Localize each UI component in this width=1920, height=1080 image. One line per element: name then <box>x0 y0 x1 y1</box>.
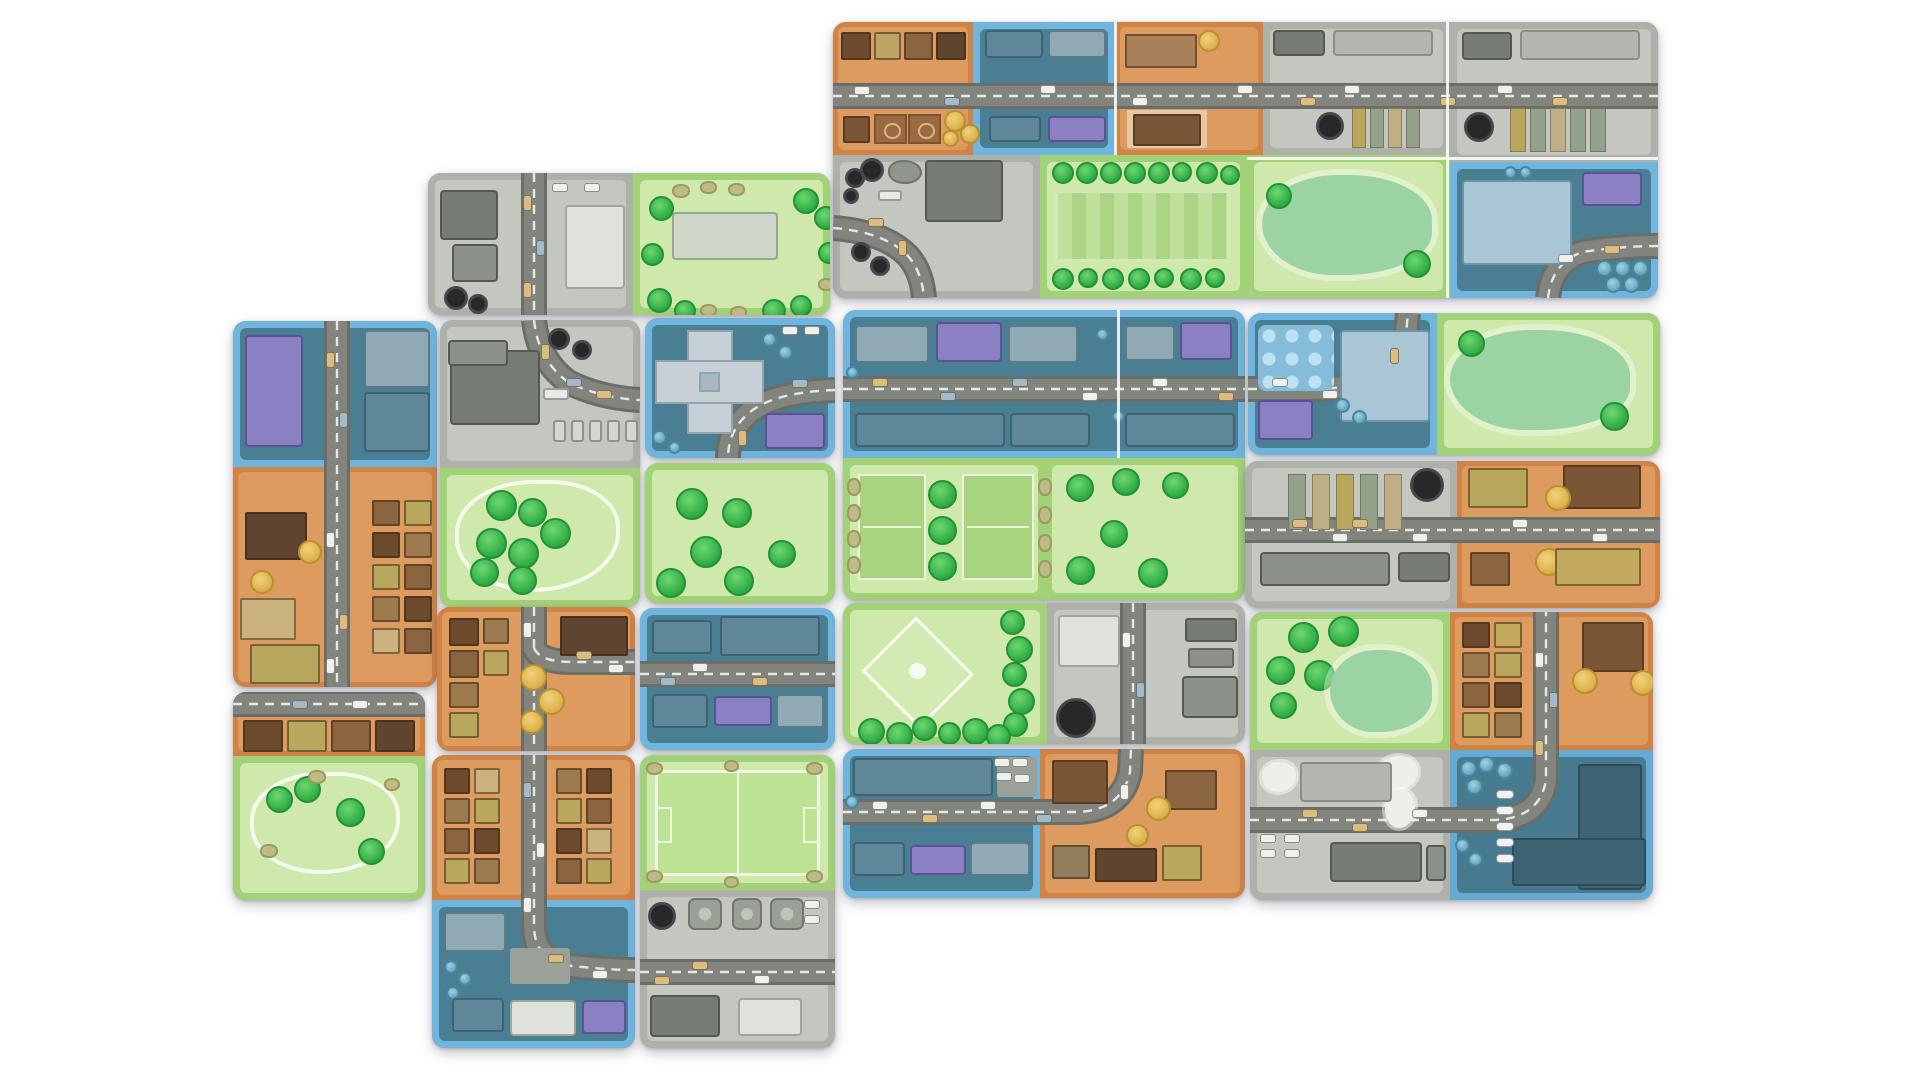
truck <box>553 420 566 442</box>
tree <box>486 490 517 521</box>
shrub <box>700 304 717 315</box>
building <box>1058 615 1120 667</box>
tree <box>1270 692 1297 719</box>
tree <box>986 724 1011 744</box>
house <box>243 720 283 752</box>
big-house <box>240 598 296 640</box>
tree <box>540 518 571 549</box>
car <box>1040 85 1056 94</box>
car <box>754 975 770 984</box>
house <box>331 720 371 752</box>
tree <box>912 716 937 741</box>
house <box>449 618 479 646</box>
shrub <box>728 183 745 196</box>
tree <box>1162 472 1189 499</box>
car <box>566 378 582 387</box>
tree <box>1002 662 1027 687</box>
tile-pool-meadow[interactable] <box>1248 313 1660 455</box>
blue-tree <box>1632 260 1649 277</box>
car <box>1120 784 1129 800</box>
car <box>548 954 564 963</box>
big-house <box>1052 760 1108 804</box>
house <box>372 596 400 622</box>
building <box>1010 413 1090 447</box>
house <box>404 532 432 558</box>
tile-grid-shops[interactable] <box>432 755 635 1048</box>
tree <box>508 538 539 569</box>
truck <box>589 420 602 442</box>
building <box>1520 30 1640 60</box>
car <box>1412 533 1428 542</box>
shrub <box>1038 560 1052 578</box>
shrub <box>646 762 663 775</box>
net-line <box>967 526 1030 528</box>
car <box>1272 378 1288 387</box>
truck <box>625 420 638 442</box>
container-row <box>1570 108 1586 152</box>
building <box>1008 325 1078 363</box>
tree <box>1288 622 1319 653</box>
container-row <box>1370 108 1384 148</box>
building <box>925 160 1003 222</box>
tile-seam <box>1247 157 1658 160</box>
house <box>444 858 470 884</box>
house <box>1494 652 1522 678</box>
car <box>592 970 608 979</box>
blue-tree <box>1478 756 1495 773</box>
building <box>714 696 772 726</box>
building <box>364 330 430 388</box>
house <box>904 32 933 60</box>
tree <box>336 798 365 827</box>
pond <box>1330 650 1432 732</box>
house <box>586 828 612 854</box>
blue-tree <box>1468 852 1483 867</box>
machine <box>770 898 804 930</box>
boat <box>1496 822 1514 831</box>
truck <box>571 420 584 442</box>
car <box>536 842 545 858</box>
tree <box>928 516 957 545</box>
container-row <box>1352 108 1366 148</box>
car <box>1136 682 1145 698</box>
building <box>652 694 708 728</box>
building <box>364 392 430 452</box>
tree <box>470 558 499 587</box>
house <box>843 116 870 143</box>
yellow-tree <box>520 710 544 734</box>
shrub <box>847 556 861 574</box>
shrub <box>806 762 823 775</box>
car <box>576 651 592 660</box>
tree <box>508 566 537 595</box>
house <box>556 828 582 854</box>
container-row <box>1406 108 1420 148</box>
shrub <box>806 870 823 883</box>
car <box>1592 533 1608 542</box>
house <box>449 682 479 708</box>
tree <box>358 838 385 865</box>
car <box>523 195 532 211</box>
yellow-tree <box>298 540 322 564</box>
building <box>1048 116 1106 142</box>
car <box>339 614 348 630</box>
crop-field <box>1055 190 1230 262</box>
tile-southside[interactable] <box>843 749 1245 898</box>
big-house <box>1095 848 1157 882</box>
tree <box>928 480 957 509</box>
car <box>1284 849 1300 858</box>
car <box>523 782 532 798</box>
building <box>1582 172 1642 206</box>
house <box>1494 712 1522 738</box>
tile-plaza[interactable] <box>645 318 835 458</box>
container-row <box>1388 108 1402 148</box>
container-row <box>1312 474 1330 530</box>
plaza-building <box>655 330 760 430</box>
baseball-diamond <box>855 613 977 727</box>
car <box>922 814 938 823</box>
car <box>854 86 870 95</box>
building <box>738 998 802 1036</box>
big-house <box>1468 468 1528 508</box>
car <box>552 183 568 192</box>
building <box>1426 845 1446 881</box>
court-ring <box>884 123 901 139</box>
shrub <box>646 870 663 883</box>
building <box>855 413 1005 447</box>
machine <box>688 898 722 930</box>
car <box>1014 774 1030 783</box>
building <box>853 758 993 796</box>
car <box>1260 834 1276 843</box>
plaza-center <box>699 372 720 392</box>
building <box>582 1000 626 1034</box>
car <box>1497 85 1513 94</box>
building <box>1462 180 1572 265</box>
tile-center-commercial[interactable] <box>843 310 1245 600</box>
tree <box>641 243 664 266</box>
car <box>1604 245 1620 254</box>
building <box>720 616 820 656</box>
house <box>372 628 400 654</box>
tree <box>1154 268 1174 288</box>
house <box>404 596 432 622</box>
car <box>1549 692 1558 708</box>
tree <box>768 540 796 568</box>
car <box>872 801 888 810</box>
truck <box>878 190 902 201</box>
yellow-tree <box>1198 30 1220 52</box>
car <box>868 218 884 227</box>
big-house <box>1165 770 1217 810</box>
tree <box>1006 636 1033 663</box>
house <box>1462 682 1490 708</box>
big-house <box>1125 34 1197 68</box>
shrub <box>818 278 830 291</box>
house <box>287 720 327 752</box>
car <box>898 240 907 256</box>
building <box>1260 552 1390 586</box>
building <box>1273 30 1325 56</box>
car <box>804 900 820 909</box>
house <box>586 768 612 794</box>
house <box>444 828 470 854</box>
tree <box>722 498 752 528</box>
blue-tree <box>652 430 667 445</box>
house <box>1462 712 1490 738</box>
car <box>944 97 960 106</box>
car <box>782 326 798 335</box>
machine <box>732 898 762 930</box>
building <box>452 244 498 282</box>
shrub <box>1038 534 1052 552</box>
car <box>1300 97 1316 106</box>
building <box>1125 325 1175 361</box>
yellow-tree <box>960 124 980 144</box>
tile-plaza-park[interactable] <box>645 463 835 603</box>
tile-upper-mid[interactable] <box>428 173 830 315</box>
house <box>474 798 500 824</box>
house <box>444 768 470 794</box>
blue-tree <box>1504 166 1517 179</box>
tree <box>1112 468 1140 496</box>
shrub <box>384 778 400 791</box>
car <box>523 897 532 913</box>
tile-orchard-road[interactable] <box>437 607 635 751</box>
truck <box>543 388 569 400</box>
car <box>804 915 820 924</box>
boat <box>1496 806 1514 815</box>
tree <box>793 188 819 214</box>
car <box>980 801 996 810</box>
tile-depot-estate[interactable] <box>1245 461 1660 608</box>
car <box>1012 378 1028 387</box>
tile-west-park[interactable] <box>233 692 425 900</box>
building <box>510 1000 576 1036</box>
tree <box>656 568 686 598</box>
tree <box>962 718 989 744</box>
car <box>1535 652 1544 668</box>
building <box>1125 413 1235 447</box>
building <box>1333 30 1433 56</box>
car <box>536 240 545 256</box>
building <box>1180 322 1232 360</box>
house <box>404 564 432 590</box>
rock-pile <box>888 160 922 184</box>
tree <box>938 722 961 744</box>
shrub <box>847 530 861 548</box>
building <box>650 995 720 1037</box>
car <box>1152 378 1168 387</box>
tree <box>649 196 674 221</box>
house <box>444 798 470 824</box>
big-house <box>250 644 320 684</box>
building <box>1340 330 1430 422</box>
tree <box>1328 616 1359 647</box>
blue-tree <box>846 366 859 379</box>
container-row <box>1510 108 1526 152</box>
pier-arm <box>1512 838 1646 886</box>
tree <box>647 288 672 313</box>
storage-tank <box>1410 468 1444 502</box>
truck <box>1185 618 1237 642</box>
container-row <box>1590 108 1606 152</box>
big-house <box>1582 622 1644 672</box>
house <box>586 858 612 884</box>
car <box>596 390 612 399</box>
car <box>940 392 956 401</box>
tree <box>1000 610 1025 635</box>
tree <box>1205 268 1225 288</box>
basketball-court <box>874 114 907 144</box>
building <box>452 998 504 1032</box>
car <box>1218 392 1234 401</box>
car <box>608 664 624 673</box>
tree <box>266 786 293 813</box>
car <box>1344 85 1360 94</box>
blue-tree <box>1455 838 1470 853</box>
house <box>1494 682 1522 708</box>
tree <box>1180 268 1202 290</box>
car <box>1552 97 1568 106</box>
tennis-court <box>858 474 926 580</box>
pebble-pool <box>1258 325 1334 391</box>
shrub <box>724 760 739 772</box>
car <box>1512 519 1528 528</box>
building <box>910 845 966 875</box>
car <box>352 700 368 709</box>
house <box>1462 622 1490 648</box>
tree <box>1066 474 1094 502</box>
boat <box>1496 790 1514 799</box>
building <box>1258 400 1313 440</box>
tree <box>1078 268 1098 288</box>
yellow-tree <box>538 688 565 715</box>
shrub <box>847 504 861 522</box>
yellow-tree <box>1126 824 1149 847</box>
pitcher-mound <box>909 663 926 679</box>
tree <box>1196 162 1218 184</box>
storage-tank <box>860 158 884 182</box>
tile-ballpark-works[interactable] <box>843 603 1245 744</box>
car <box>326 352 335 368</box>
tree <box>690 536 722 568</box>
goal <box>656 807 672 843</box>
blue-tree <box>1519 166 1532 179</box>
house <box>474 768 500 794</box>
building <box>1182 676 1238 718</box>
truck <box>1188 648 1234 668</box>
car <box>692 663 708 672</box>
storage-tank <box>870 256 890 276</box>
house <box>483 650 509 676</box>
tree <box>476 528 507 559</box>
car <box>541 344 550 360</box>
tree <box>1066 556 1095 585</box>
car <box>1284 834 1300 843</box>
tree <box>1266 656 1295 685</box>
shrub <box>308 770 326 784</box>
tile-seam <box>1117 310 1120 458</box>
tree <box>1172 162 1192 182</box>
storage-tank <box>548 328 570 350</box>
car <box>1332 533 1348 542</box>
car <box>1390 348 1399 364</box>
car <box>584 183 600 192</box>
blue-tree <box>1614 260 1631 277</box>
building <box>936 322 1002 362</box>
tree <box>1403 250 1431 278</box>
pier-warehouse <box>1512 764 1642 886</box>
tile-north-group[interactable] <box>833 22 1658 298</box>
car <box>523 622 532 638</box>
house <box>556 858 582 884</box>
yellow-tree <box>1146 796 1171 821</box>
tree <box>1220 165 1240 185</box>
building <box>853 842 905 876</box>
building <box>776 694 824 728</box>
blue-tree <box>778 345 793 360</box>
shrub <box>1038 478 1052 496</box>
shrub <box>700 181 717 194</box>
car <box>292 700 308 709</box>
blue-tree <box>1605 276 1622 293</box>
building <box>444 912 506 952</box>
car <box>1237 85 1253 94</box>
tile-factory-park[interactable] <box>440 320 640 607</box>
house <box>1052 845 1090 879</box>
house <box>1462 652 1490 678</box>
house <box>841 32 871 60</box>
yellow-tree <box>1545 485 1571 511</box>
tile-west-tall[interactable] <box>233 321 437 687</box>
building <box>448 340 508 366</box>
big-house <box>1133 114 1201 146</box>
tree <box>676 488 708 520</box>
storage-tank <box>1316 112 1344 140</box>
shrub <box>672 184 690 198</box>
yellow-tree <box>1630 670 1653 696</box>
blue-tree <box>1623 276 1640 293</box>
tile-southeast[interactable] <box>1250 612 1653 900</box>
tile-mid-shops[interactable] <box>640 608 835 750</box>
building <box>245 335 303 447</box>
tile-soccer-works[interactable] <box>640 755 835 1048</box>
shrub <box>1038 506 1052 524</box>
house <box>483 618 509 644</box>
car <box>654 976 670 985</box>
big-house <box>1563 465 1641 509</box>
storage-tank <box>1464 112 1494 142</box>
shrub <box>730 306 747 315</box>
storage-tank <box>444 286 468 310</box>
tree <box>674 300 696 315</box>
car <box>1322 390 1338 399</box>
car <box>994 758 1010 767</box>
tree <box>1128 268 1150 290</box>
car <box>1412 809 1428 818</box>
car <box>339 412 348 428</box>
car <box>692 961 708 970</box>
tree <box>1052 268 1074 290</box>
net-line <box>863 526 922 528</box>
car <box>1132 97 1148 106</box>
building <box>970 842 1030 876</box>
house <box>1494 622 1522 648</box>
storage-tank <box>1056 698 1096 738</box>
tree <box>1138 558 1168 588</box>
